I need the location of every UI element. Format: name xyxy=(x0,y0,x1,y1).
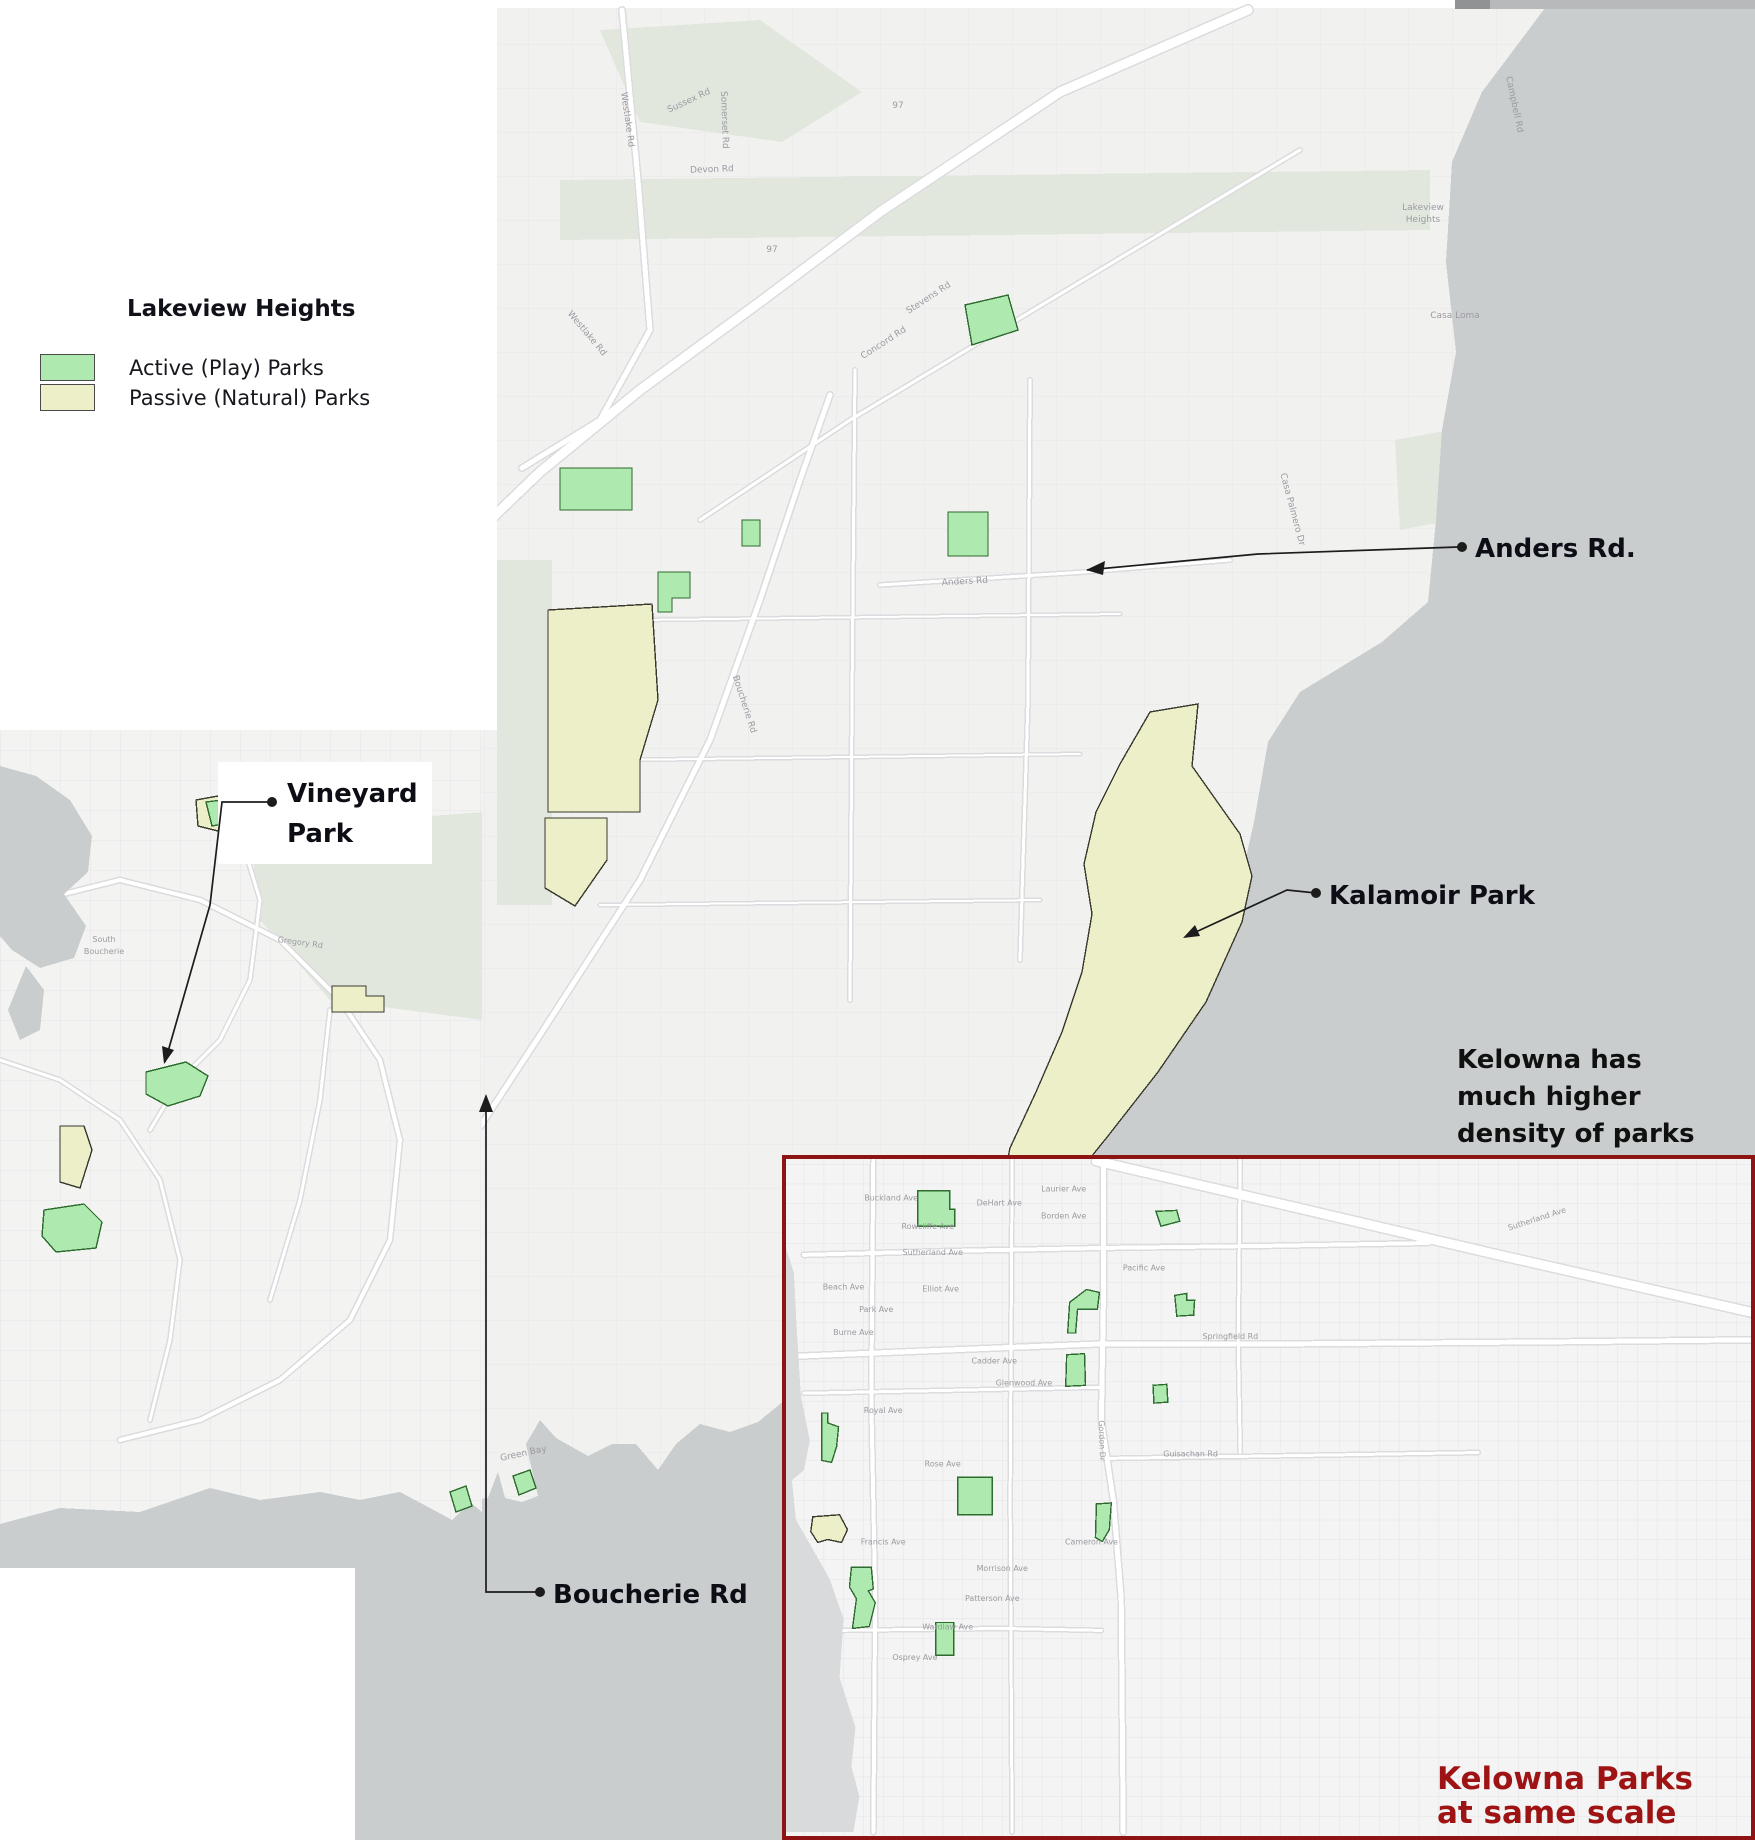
map-text-label: Devon Rd xyxy=(690,164,734,176)
map-text-label: Burne Ave xyxy=(833,1328,874,1337)
label-anders-rd: Anders Rd. xyxy=(1475,529,1636,569)
legend-title: Lakeview Heights xyxy=(127,296,355,322)
label-kalamoir-park: Kalamoir Park xyxy=(1329,876,1535,916)
density-note-line2: much higher xyxy=(1457,1079,1695,1116)
map-text-label: Laurier Ave xyxy=(1041,1185,1086,1194)
label-vineyard-park: Vineyard Park xyxy=(287,774,418,854)
map-text-label: Sutherland Ave xyxy=(903,1248,964,1257)
top-scrollbar-thumb[interactable] xyxy=(1455,0,1490,9)
map-text-label: Rowcliffe Ave xyxy=(902,1222,955,1231)
map-text-label: Borden Ave xyxy=(1041,1211,1086,1220)
kelowna-parcel-grid xyxy=(786,1159,1751,1836)
map-text-label: 97 xyxy=(766,245,777,255)
kelowna-inset-svg: Buckland AveLaurier AveDeHart AveBorden … xyxy=(786,1159,1751,1836)
map-text-label: Royal Ave xyxy=(864,1406,903,1415)
kel-1-polygon[interactable] xyxy=(918,1191,955,1227)
label-vineyard-line2: Park xyxy=(287,814,418,854)
map-text-label: 97 xyxy=(892,101,903,111)
park-tiny-green-polygon[interactable] xyxy=(742,520,760,546)
map-text-label: Somerset Rd xyxy=(718,91,730,149)
map-text-label: Park Ave xyxy=(859,1305,893,1314)
kelowna-caption-line2: at same scale xyxy=(1437,1796,1693,1830)
label-vineyard-line1: Vineyard xyxy=(287,774,418,814)
map-text-label: Patterson Ave xyxy=(965,1594,1020,1603)
green-zone xyxy=(560,170,1430,240)
map-text-label: Lakeview xyxy=(1402,203,1444,213)
map-text-label: Heights xyxy=(1406,215,1441,225)
map-text-label: DeHart Ave xyxy=(977,1198,1022,1207)
road xyxy=(1238,1159,1240,1453)
legend-label-passive: Passive (Natural) Parks xyxy=(129,386,370,410)
map-text-label: Wardlaw Ave xyxy=(922,1622,973,1631)
kelowna-caption-line1: Kelowna Parks xyxy=(1437,1762,1693,1796)
map-text-label: Cadder Ave xyxy=(971,1357,1017,1366)
density-note-line1: Kelowna has xyxy=(1457,1042,1695,1079)
legend-panel: Lakeview Heights Active (Play) Parks Pas… xyxy=(0,0,497,730)
legend-label-active: Active (Play) Parks xyxy=(129,356,324,380)
legend-item-active: Active (Play) Parks xyxy=(40,354,324,381)
passive-park-swatch xyxy=(40,384,95,411)
map-text-label: Morrison Ave xyxy=(977,1564,1028,1573)
map-text-label: Gordon Dr xyxy=(1097,1420,1107,1462)
map-text-label: Beach Ave xyxy=(823,1282,865,1291)
map-text-label: Springfield Rd xyxy=(1202,1332,1258,1341)
map-text-label: Rose Ave xyxy=(925,1459,961,1468)
map-text-label: South xyxy=(92,935,115,944)
park-green-rect-polygon[interactable] xyxy=(560,468,632,510)
green-zone xyxy=(497,560,552,905)
label-boucherie-rd: Boucherie Rd xyxy=(553,1575,748,1615)
park-anders-green-polygon[interactable] xyxy=(948,512,988,556)
legend-item-passive: Passive (Natural) Parks xyxy=(40,384,370,411)
kel-6-polygon[interactable] xyxy=(1153,1384,1168,1403)
map-text-label: Pacific Ave xyxy=(1123,1264,1165,1273)
map-text-label: Casa Loma xyxy=(1430,311,1480,321)
map-text-label: Guisachan Rd xyxy=(1163,1449,1218,1458)
top-scrollbar-track[interactable] xyxy=(1490,0,1755,9)
kel-8-polygon[interactable] xyxy=(958,1477,993,1515)
map-text-label: Francis Ave xyxy=(861,1537,906,1546)
map-text-label: Buckland Ave xyxy=(864,1194,918,1203)
kelowna-inset-caption: Kelowna Parks at same scale xyxy=(1437,1762,1693,1830)
map-text-label: Glenwood Ave xyxy=(996,1378,1053,1387)
map-canvas: Westlake RdWestlake RdStevens RdConcord … xyxy=(0,0,1755,1840)
map-text-label: Elliot Ave xyxy=(922,1284,959,1293)
kel-12-polygon[interactable] xyxy=(811,1515,848,1543)
kelowna-inset-map[interactable]: Buckland AveLaurier AveDeHart AveBorden … xyxy=(782,1155,1755,1840)
map-text-label: Boucherie xyxy=(84,947,124,956)
density-note: Kelowna has much higher density of parks xyxy=(1457,1042,1695,1153)
kel-5-polygon[interactable] xyxy=(1066,1354,1086,1387)
map-text-label: Cameron Ave xyxy=(1065,1537,1118,1546)
density-note-line3: density of parks xyxy=(1457,1116,1695,1153)
map-text-label: Osprey Ave xyxy=(892,1653,937,1662)
active-park-swatch xyxy=(40,354,95,381)
bottom-left-whitespace xyxy=(0,1568,355,1840)
